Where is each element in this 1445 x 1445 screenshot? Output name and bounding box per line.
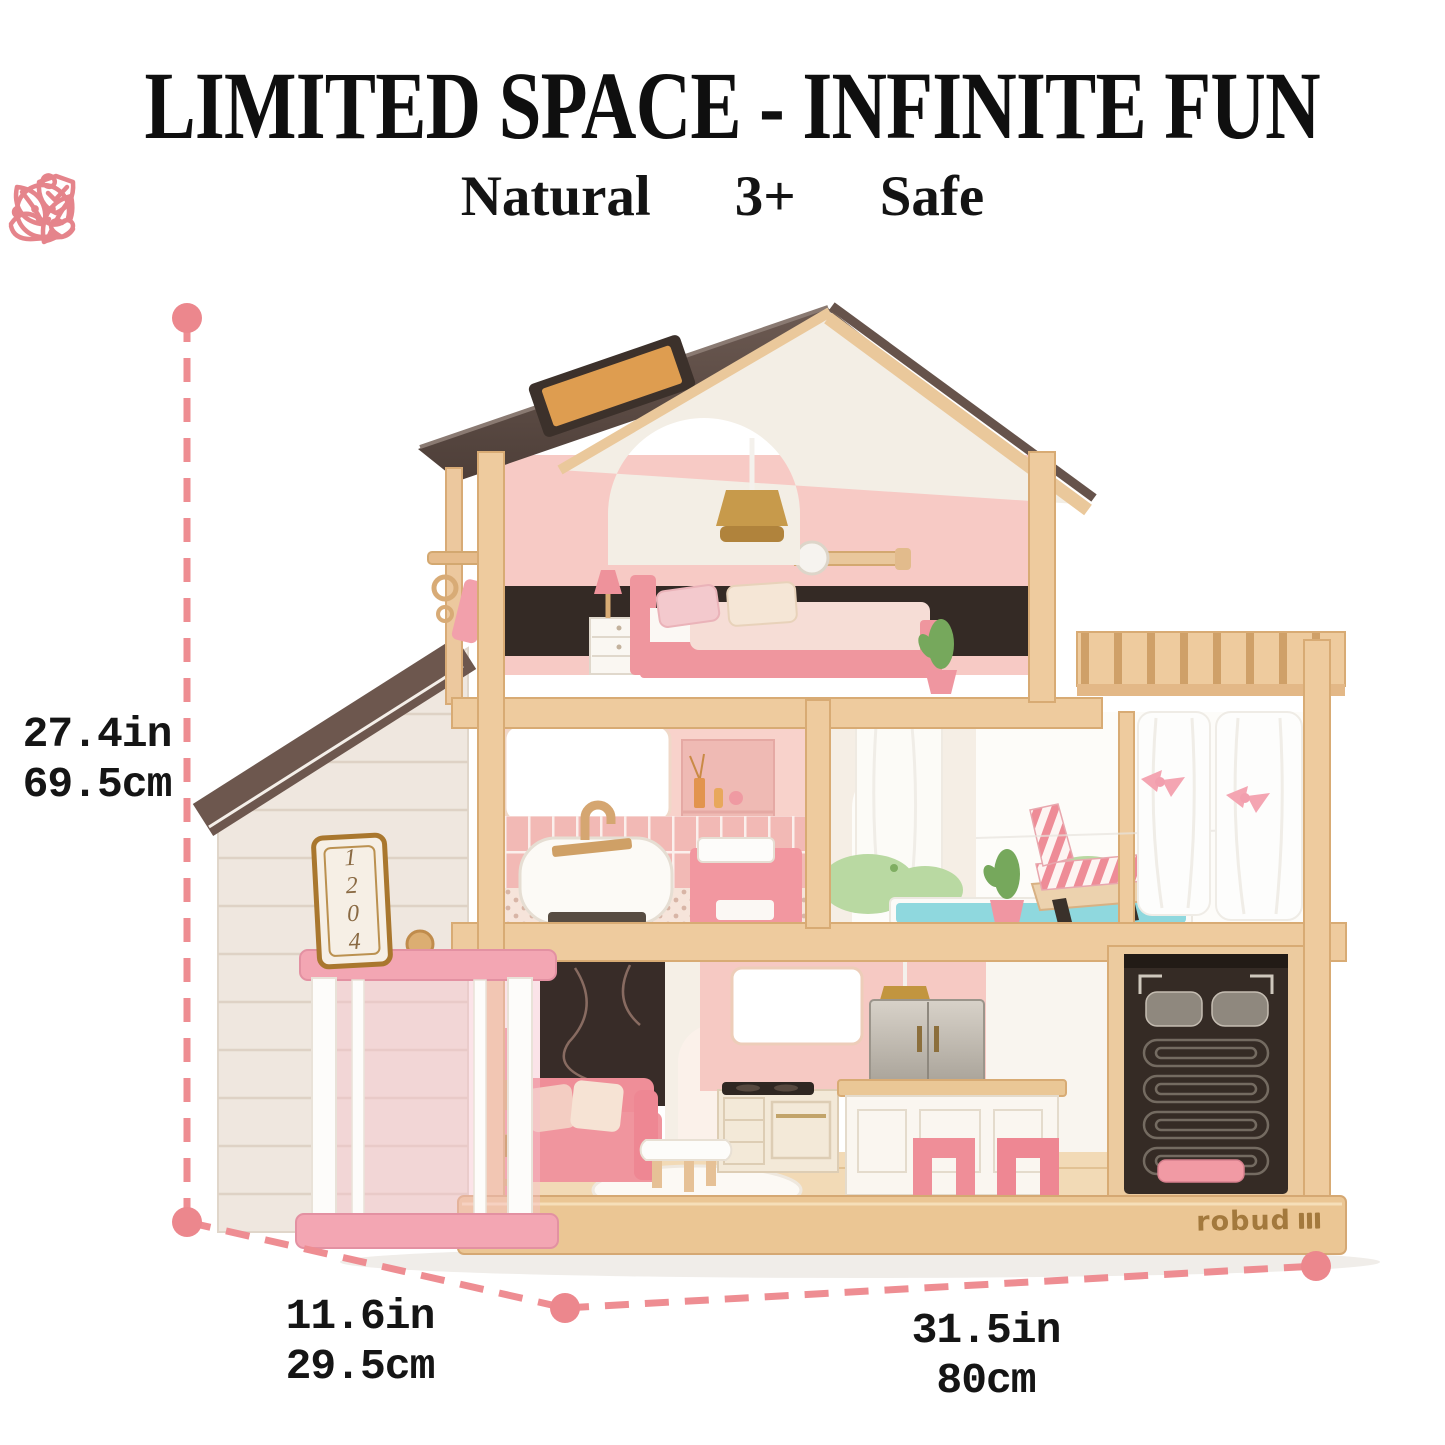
feature-safe-label: Safe <box>880 164 984 229</box>
shield-hand-icon <box>0 164 86 250</box>
depth-dimension-label: 11.6in 29.5cm <box>238 1292 482 1393</box>
depth-inches: 11.6in <box>238 1292 482 1342</box>
feature-safe: Safe <box>880 164 984 229</box>
width-inches: 31.5in <box>848 1306 1124 1356</box>
width-dimension-label: 31.5in 80cm <box>848 1306 1124 1407</box>
dimension-endpoints <box>172 303 1331 1323</box>
feature-natural: Natural <box>461 164 651 229</box>
brand-logo-text: robud <box>1196 1205 1291 1238</box>
depth-centimeters: 29.5cm <box>238 1342 482 1392</box>
height-dimension-label: 27.4in 69.5cm <box>8 710 186 811</box>
page-title: LIMITED SPACE - INFINITE FUN <box>145 50 1301 161</box>
feature-age-label: 3+ <box>735 164 796 229</box>
address-sign: 1204 <box>311 832 394 970</box>
height-inches: 27.4in <box>8 710 186 760</box>
height-centimeters: 69.5cm <box>8 760 186 810</box>
brand-logo-icon <box>1299 1212 1320 1228</box>
feature-row: Natural 3+ Safe <box>0 164 1445 229</box>
feature-age: 3+ <box>735 164 796 229</box>
width-centimeters: 80cm <box>848 1356 1124 1406</box>
feature-natural-label: Natural <box>461 164 651 229</box>
product-infographic: LIMITED SPACE - INFINITE FUN Natural <box>0 0 1445 1445</box>
address-sign-number: 1204 <box>336 844 369 957</box>
width-dimension-line <box>565 1266 1316 1308</box>
brand-logo: robud <box>1150 1205 1321 1239</box>
